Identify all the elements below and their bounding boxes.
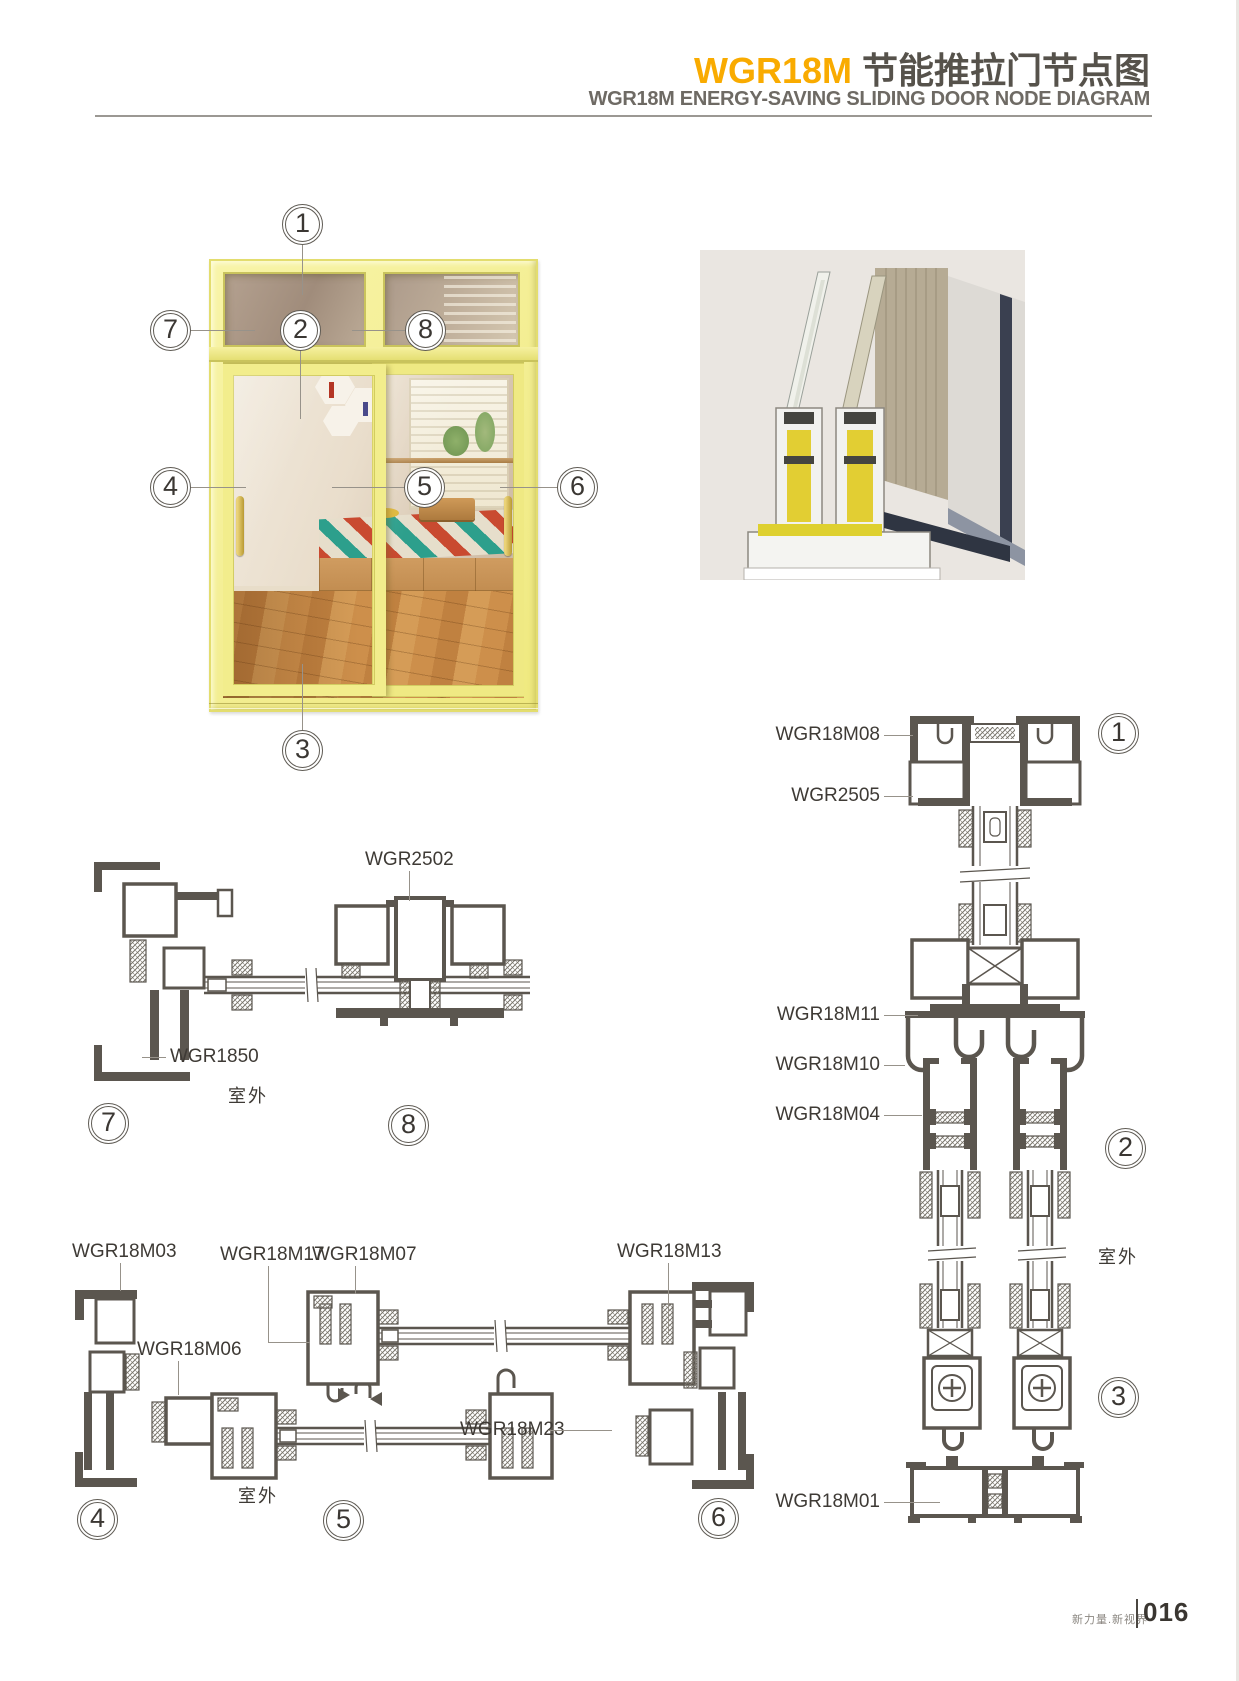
label-wgr18m11: WGR18M11 (770, 1004, 880, 1026)
label-leader (268, 1342, 310, 1343)
label-wgr18m04: WGR18M04 (770, 1104, 880, 1126)
head-frame-profile (910, 716, 1080, 806)
footer-divider (1136, 1599, 1138, 1628)
sliding-panel-left (223, 364, 386, 696)
roller-assembly (924, 1330, 1070, 1449)
outdoor-label: 室外 (238, 1482, 278, 1508)
overview-callout-6: 6 (557, 467, 598, 508)
callout-leader (332, 487, 404, 488)
bottom-track-profile (906, 1456, 1084, 1523)
callout-number: 1 (1111, 719, 1126, 746)
callout-leader (191, 330, 255, 331)
outdoor-label: 室外 (228, 1082, 268, 1108)
callout-number: 2 (1118, 1134, 1133, 1161)
label-leader (142, 1057, 166, 1058)
label-leader (884, 1065, 905, 1066)
overview-callout-2: 2 (280, 310, 321, 351)
door-opening (223, 362, 524, 698)
callout-number: 3 (295, 736, 310, 763)
transom-rail (209, 347, 538, 362)
callout-leader (302, 245, 303, 295)
overview-callout-1: 1 (282, 204, 323, 245)
label-leader (884, 735, 913, 736)
jamb-profile (75, 1290, 139, 1487)
callout-number: 3 (1111, 1383, 1126, 1410)
label-leader (409, 871, 410, 901)
callout-leader (302, 664, 303, 730)
callout-number: 5 (417, 473, 432, 500)
section-callout-7: 7 (88, 1103, 129, 1144)
callout-number: 8 (418, 316, 433, 343)
callout-number: 7 (163, 316, 178, 343)
section-456-drawing (70, 1240, 760, 1510)
callout-number: 4 (163, 473, 178, 500)
mullion-profile (336, 898, 504, 1026)
label-leader (120, 1263, 121, 1291)
overview-callout-7: 7 (150, 310, 191, 351)
page-subtitle: WGR18M ENERGY-SAVING SLIDING DOOR NODE D… (589, 88, 1150, 111)
header-rule (95, 115, 1152, 117)
section-callout-6: 6 (698, 1498, 739, 1539)
label-wgr2505: WGR2505 (770, 785, 880, 807)
section-callout-2: 2 (1105, 1128, 1146, 1169)
label-leader (178, 1361, 179, 1395)
label-leader (548, 1430, 612, 1431)
label-leader (884, 1015, 918, 1016)
section-callout-3: 3 (1098, 1377, 1139, 1418)
transom-sill-profile (912, 940, 1078, 1011)
callout-number: 1 (295, 210, 310, 237)
callout-number: 6 (711, 1504, 726, 1531)
window-blinds (444, 276, 516, 343)
label-wgr18m06: WGR18M06 (137, 1339, 242, 1361)
callout-leader (500, 487, 557, 488)
label-wgr18m07: WGR18M07 (312, 1244, 417, 1266)
callout-number: 6 (570, 473, 585, 500)
section-callout-8: 8 (388, 1105, 429, 1146)
profile-3d-render (700, 250, 1025, 580)
door-handle-right (504, 496, 512, 556)
glass-pane (276, 1428, 490, 1444)
section-callout-5: 5 (323, 1500, 364, 1541)
callout-number: 4 (90, 1505, 105, 1532)
callout-number: 8 (401, 1111, 416, 1138)
door-hanger-profile (923, 1058, 1067, 1170)
page-title: WGR18M节能推拉门节点图 (694, 42, 1150, 94)
adapter-profile (166, 1398, 212, 1444)
section-callout-1: 1 (1098, 713, 1139, 754)
page-title-cn: 节能推拉门节点图 (862, 50, 1150, 91)
label-leader (668, 1263, 669, 1335)
label-leader (268, 1266, 269, 1343)
page-number: 016 (1143, 1597, 1189, 1628)
transom-pane-right (383, 272, 520, 347)
label-leader (884, 1115, 922, 1116)
brand-name: WGR18M (694, 50, 852, 91)
glass-edge (1000, 294, 1012, 548)
outdoor-label: 室外 (1098, 1243, 1138, 1269)
door-handle-left (236, 496, 244, 556)
callout-number: 2 (293, 316, 308, 343)
bottom-rail (748, 532, 930, 572)
label-wgr18m17: WGR18M17 (220, 1244, 325, 1266)
callout-leader (352, 330, 405, 331)
label-wgr18m01: WGR18M01 (770, 1491, 880, 1513)
label-wgr2502: WGR2502 (365, 849, 454, 871)
label-leader (884, 1502, 940, 1503)
label-leader (355, 1266, 356, 1294)
callout-leader (191, 487, 246, 488)
overview-callout-5: 5 (404, 467, 445, 508)
section-78-drawing (80, 840, 530, 1090)
overview-callout-8: 8 (405, 310, 446, 351)
wall-panel (948, 276, 1025, 555)
label-leader (884, 796, 913, 797)
catalog-page: WGR18M节能推拉门节点图 WGR18M ENERGY-SAVING SLID… (0, 0, 1239, 1681)
label-wgr18m13: WGR18M13 (617, 1241, 722, 1263)
label-wgr18m03: WGR18M03 (72, 1241, 177, 1263)
overview-callout-4: 4 (150, 467, 191, 508)
label-wgr18m08: WGR18M08 (770, 724, 880, 746)
door-overview (209, 259, 538, 712)
sill-groove (209, 708, 538, 709)
glass-pane (204, 977, 530, 993)
callout-leader (300, 351, 301, 419)
connector-profile (650, 1410, 692, 1464)
section-callout-4: 4 (77, 1499, 118, 1540)
sill-groove (209, 703, 538, 704)
overview-callout-3: 3 (282, 730, 323, 771)
label-wgr1850: WGR1850 (170, 1046, 259, 1068)
label-wgr18m10: WGR18M10 (770, 1054, 880, 1076)
callout-number: 5 (336, 1506, 351, 1533)
callout-number: 7 (101, 1109, 116, 1136)
sliding-panel-right (373, 364, 524, 696)
